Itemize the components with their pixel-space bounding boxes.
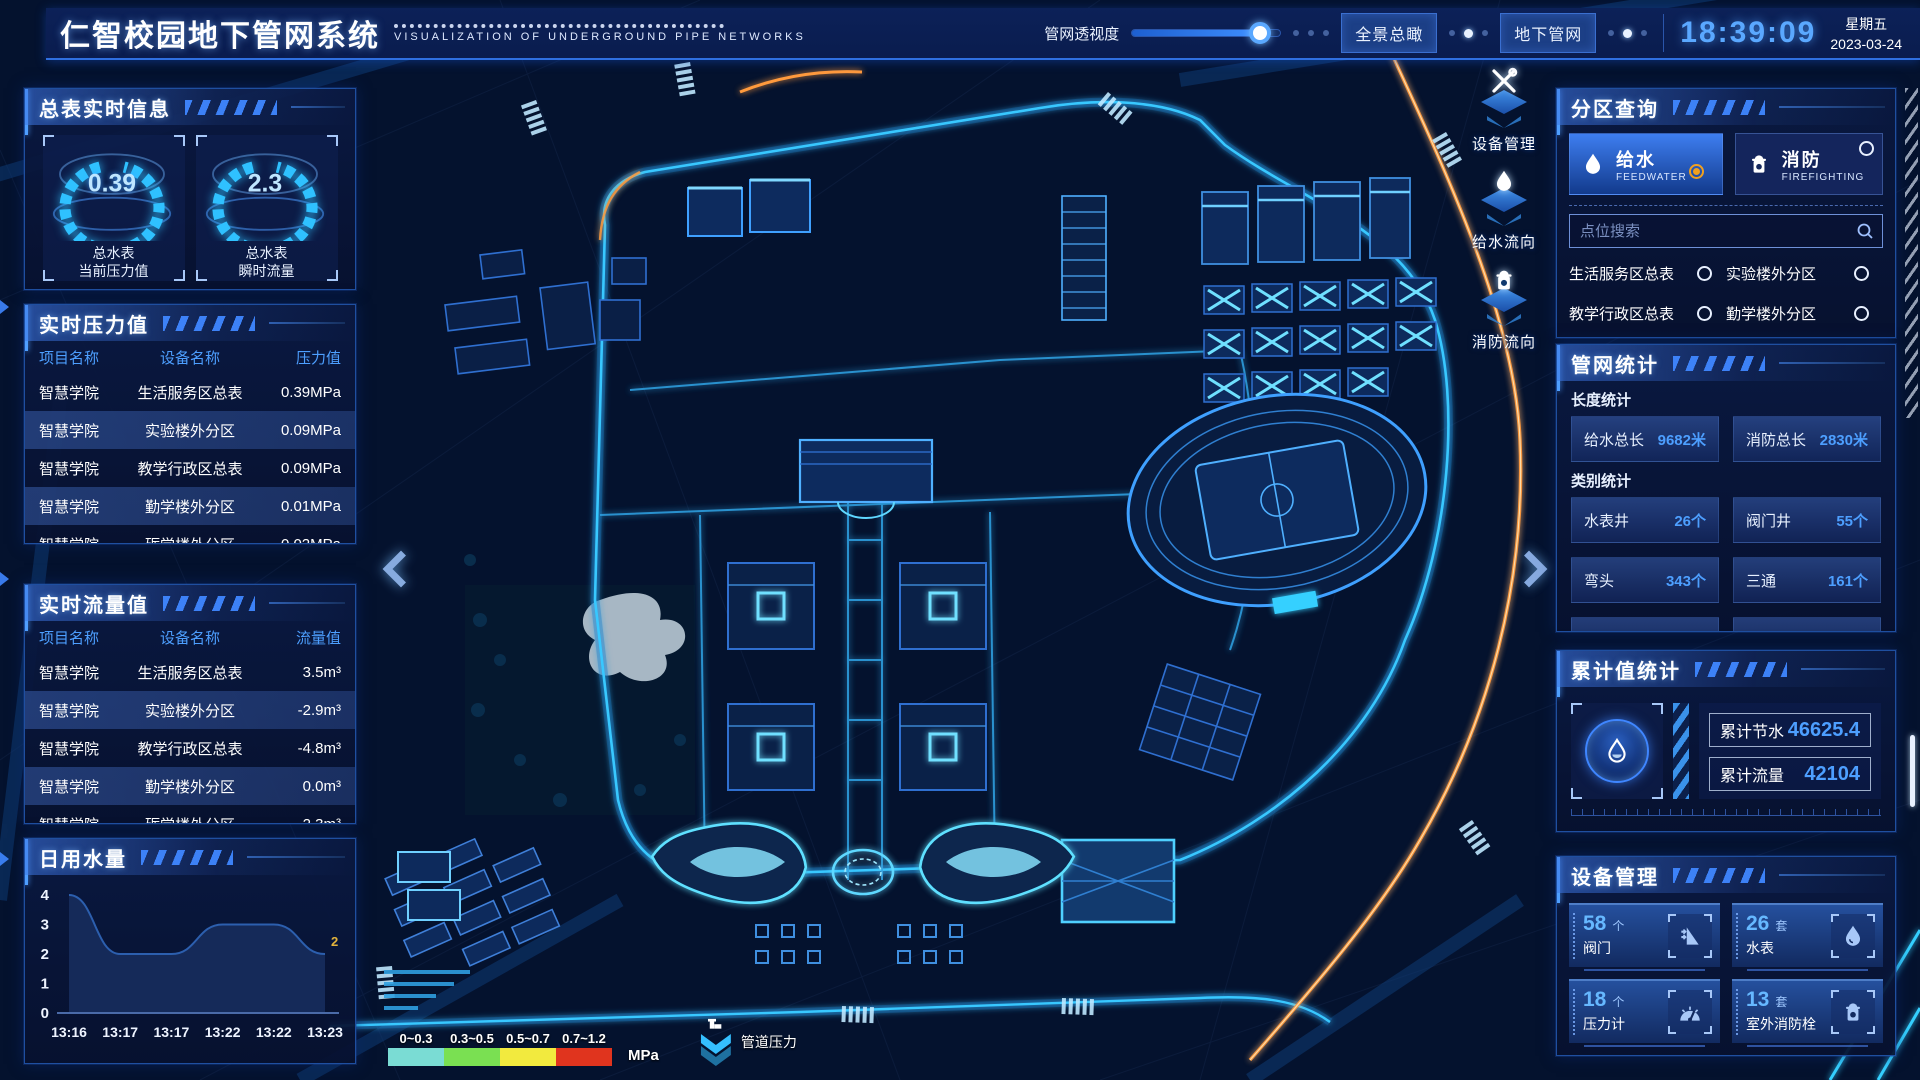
panel-zone-query: 分区查询 给水 FEEDWATER 消防 FIREFIGHTING	[1556, 88, 1896, 338]
legend-range-label: 0.7~1.2	[556, 1031, 612, 1046]
map-badge-device-management[interactable]: 设备管理	[1472, 66, 1536, 154]
gauge-label: 总水表 瞬时流量	[196, 244, 338, 280]
gauge-pressure: 0.39 总水表 当前压力值	[43, 135, 185, 281]
zone-item[interactable]: 实验楼外分区	[1726, 254, 1883, 292]
panel-title: 分区查询	[1571, 93, 1659, 122]
device-card-valve[interactable]: 58个 阀门	[1569, 903, 1720, 967]
pipe-pressure-legend: 0~0.3 0.3~0.5 0.5~0.7 0.7~1.2 MPa 管道压力	[388, 1018, 797, 1066]
chevron-down-icon	[1487, 116, 1521, 128]
gauge-label: 总水表 当前压力值	[43, 244, 185, 280]
panel-pipe-stats: 管网统计 长度统计 给水总长9682米 消防总长2830米 类别统计 水表井26…	[1556, 344, 1896, 632]
dots-decoration	[1608, 29, 1647, 38]
page-subtitle: VISUALIZATION OF UNDERGROUND PIPE NETWOR…	[394, 31, 806, 43]
svg-text:3: 3	[41, 917, 49, 934]
map-badge-feedwater-flow[interactable]: 给水流向	[1472, 168, 1536, 252]
clock-block: 18:39:09 星期五 2023-03-24	[1663, 14, 1902, 52]
panel-daily-water: 日用水量 0123413:1613:1713:1713:2213:2213:23…	[24, 838, 356, 1064]
panel-title: 日用水量	[39, 843, 127, 872]
table-header: 项目名称设备名称流量值	[25, 621, 355, 653]
map-badge-firefighting-flow[interactable]: 消防流向	[1472, 266, 1536, 352]
title-subtitle-block: VISUALIZATION OF UNDERGROUND PIPE NETWOR…	[394, 24, 806, 43]
svg-text:13:17: 13:17	[153, 1024, 189, 1040]
panel-title: 管网统计	[1571, 349, 1659, 378]
weekday-label: 星期五	[1845, 14, 1887, 34]
slashes-decoration	[185, 100, 277, 115]
edge-slashes-decoration	[1905, 88, 1918, 418]
pipe-opacity-label: 管网透视度	[1044, 23, 1119, 44]
daily-water-chart: 0123413:1613:1713:1713:2213:2213:232	[25, 875, 355, 1061]
svg-text:13:22: 13:22	[256, 1024, 292, 1040]
panel-cumulative-stats: 累计值统计 累计节水46625.4 累计流量42104	[1556, 650, 1896, 832]
slider-thumb[interactable]	[1249, 22, 1271, 44]
page-title: 仁智校园地下管网系统	[60, 11, 380, 55]
table-row[interactable]: 智慧学院教学行政区总表-4.8m³	[25, 729, 355, 767]
panel-title: 总表实时信息	[39, 93, 171, 122]
radio-icon[interactable]	[1854, 266, 1869, 281]
slashes-decoration	[163, 316, 255, 331]
tab-feedwater[interactable]: 给水 FEEDWATER	[1569, 133, 1723, 195]
cumulative-flow: 累计流量42104	[1709, 757, 1871, 791]
table-header: 项目名称设备名称压力值	[25, 341, 355, 373]
panel-realtime-info: 总表实时信息 0.39 总水表 当前压力值 2	[24, 88, 356, 290]
ruler-decoration	[1571, 809, 1881, 816]
svg-text:0: 0	[41, 1005, 49, 1022]
table-row[interactable]: 智慧学院教学行政区总表0.09MPa	[25, 449, 355, 487]
hydrant-icon	[1831, 990, 1875, 1034]
underground-pipes-button[interactable]: 地下管网	[1500, 13, 1596, 53]
table-row[interactable]: 智慧学院砺学楼外分区0.02MPa	[25, 525, 355, 544]
panel-realtime-pressure: 实时压力值 项目名称设备名称压力值 智慧学院生活服务区总表0.39MPa 智慧学…	[24, 304, 356, 544]
radio-icon[interactable]	[1697, 306, 1712, 321]
edge-arrow-decoration	[0, 300, 9, 314]
stripe-divider	[1673, 703, 1689, 799]
stat-chip: 三通161个	[1733, 557, 1881, 603]
slashes-decoration	[1695, 662, 1787, 677]
panel-title: 设备管理	[1571, 861, 1659, 890]
svg-text:13:22: 13:22	[205, 1024, 241, 1040]
panel-realtime-flow: 实时流量值 项目名称设备名称流量值 智慧学院生活服务区总表3.5m³ 智慧学院实…	[24, 584, 356, 824]
water-drop-icon	[1585, 719, 1649, 783]
tab-firefighting[interactable]: 消防 FIREFIGHTING	[1735, 133, 1883, 195]
device-card-water-meter[interactable]: 26套 水表	[1732, 903, 1883, 967]
dots-decoration	[1449, 29, 1488, 38]
chevron-down-icon	[1487, 314, 1521, 326]
hydrant-icon	[1490, 266, 1518, 294]
length-stats-label: 长度统计	[1557, 381, 1895, 416]
table-row[interactable]: 智慧学院砺学楼外分区2.3m³	[25, 805, 355, 824]
stat-chip: 消防总长2830米	[1733, 416, 1881, 462]
gauge-dial: 2.3	[196, 137, 334, 241]
legend-range-label: 0.5~0.7	[500, 1031, 556, 1046]
device-card-pressure-gauge[interactable]: 18个 压力计	[1569, 979, 1720, 1043]
svg-text:13:17: 13:17	[102, 1024, 138, 1040]
svg-text:2: 2	[41, 946, 49, 963]
table-row[interactable]: 智慧学院实验楼外分区0.09MPa	[25, 411, 355, 449]
zone-item[interactable]: 生活服务区总表	[1569, 254, 1726, 292]
chevron-down-icon	[1487, 214, 1521, 226]
scrollbar[interactable]	[1910, 735, 1915, 807]
tools-icon	[1489, 66, 1519, 96]
legend-unit: MPa	[628, 1047, 659, 1064]
stat-chip: 弯头343个	[1571, 557, 1719, 603]
radio-icon[interactable]	[1697, 266, 1712, 281]
gauge-flow: 2.3 总水表 瞬时流量	[196, 135, 338, 281]
zone-item[interactable]: 宿舍区泵房	[1726, 334, 1883, 338]
overview-button[interactable]: 全景总瞰	[1341, 13, 1437, 53]
water-drop-icon	[1580, 151, 1606, 177]
dots-decoration	[1293, 30, 1329, 36]
pipe-valve-icon	[707, 1018, 725, 1034]
water-saving-icon-frame	[1571, 703, 1663, 799]
svg-text:2.3: 2.3	[247, 170, 281, 197]
pressure-indicator[interactable]	[701, 1018, 731, 1066]
title-dots-decoration	[394, 24, 724, 28]
cumulative-water-saved: 累计节水46625.4	[1709, 713, 1871, 747]
radio-selected-icon[interactable]	[1689, 164, 1704, 179]
clock-time: 18:39:09	[1680, 16, 1816, 50]
panel-title: 实时流量值	[39, 589, 149, 618]
stat-chip-clipped	[1571, 617, 1719, 632]
date-label: 2023-03-24	[1830, 36, 1902, 52]
edge-arrow-decoration	[0, 852, 9, 866]
stat-chip-clipped	[1733, 617, 1881, 632]
search-icon[interactable]	[1855, 221, 1875, 241]
svg-text:2: 2	[331, 934, 338, 949]
pipe-opacity-slider[interactable]	[1131, 29, 1281, 37]
dashed-separator	[1569, 205, 1883, 206]
slashes-decoration	[163, 596, 255, 611]
zone-item[interactable]: 勤学楼外分区	[1726, 294, 1883, 332]
zone-item[interactable]: 教学行政区总表	[1569, 294, 1726, 332]
dashboard-screen: 仁智校园地下管网系统 VISUALIZATION OF UNDERGROUND …	[0, 0, 1920, 1080]
slider-fill	[1132, 30, 1259, 36]
gauge-dial: 0.39	[43, 137, 181, 241]
stat-chip: 阀门井55个	[1733, 497, 1881, 543]
water-meter-icon	[1831, 914, 1875, 958]
pressure-gauge-icon	[1668, 990, 1712, 1034]
slashes-decoration	[1673, 868, 1765, 883]
panel-device-management: 设备管理 58个 阀门 26套 水表	[1556, 856, 1896, 1056]
legend-range-label: 0.3~0.5	[444, 1031, 500, 1046]
search-input[interactable]	[1569, 214, 1883, 248]
table-row[interactable]: 智慧学院生活服务区总表3.5m³	[25, 653, 355, 691]
svg-text:1: 1	[41, 976, 49, 993]
header-bar: 仁智校园地下管网系统 VISUALIZATION OF UNDERGROUND …	[46, 8, 1920, 60]
svg-text:13:23: 13:23	[307, 1024, 343, 1040]
radio-icon[interactable]	[1854, 306, 1869, 321]
panel-title: 累计值统计	[1571, 655, 1681, 684]
valve-icon	[1668, 914, 1712, 958]
svg-text:4: 4	[41, 887, 50, 904]
panel-title: 实时压力值	[39, 309, 149, 338]
svg-text:0.39: 0.39	[87, 170, 135, 197]
slashes-decoration	[1673, 356, 1765, 371]
table-row[interactable]: 智慧学院生活服务区总表0.39MPa	[25, 373, 355, 411]
water-drop-icon	[1491, 168, 1517, 194]
stat-chip: 给水总长9682米	[1571, 416, 1719, 462]
legend-title: 管道压力	[741, 1032, 797, 1052]
legend-color-bar	[388, 1048, 612, 1066]
table-row[interactable]: 智慧学院勤学楼外分区0.01MPa	[25, 487, 355, 525]
stat-chip: 水表井26个	[1571, 497, 1719, 543]
hydrant-icon	[1746, 151, 1772, 177]
legend-range-label: 0~0.3	[388, 1031, 444, 1046]
category-stats-label: 类别统计	[1557, 462, 1895, 497]
radio-icon[interactable]	[1859, 141, 1874, 156]
device-card-outdoor-hydrant[interactable]: 13套 室外消防栓	[1732, 979, 1883, 1043]
svg-text:13:16: 13:16	[51, 1024, 87, 1040]
slashes-decoration	[141, 850, 233, 865]
table-row[interactable]: 智慧学院勤学楼外分区0.0m³	[25, 767, 355, 805]
edge-arrow-decoration	[0, 572, 9, 586]
table-row[interactable]: 智慧学院实验楼外分区-2.9m³	[25, 691, 355, 729]
slashes-decoration	[1673, 100, 1765, 115]
zone-item[interactable]: 砺学楼外分区	[1569, 334, 1726, 338]
